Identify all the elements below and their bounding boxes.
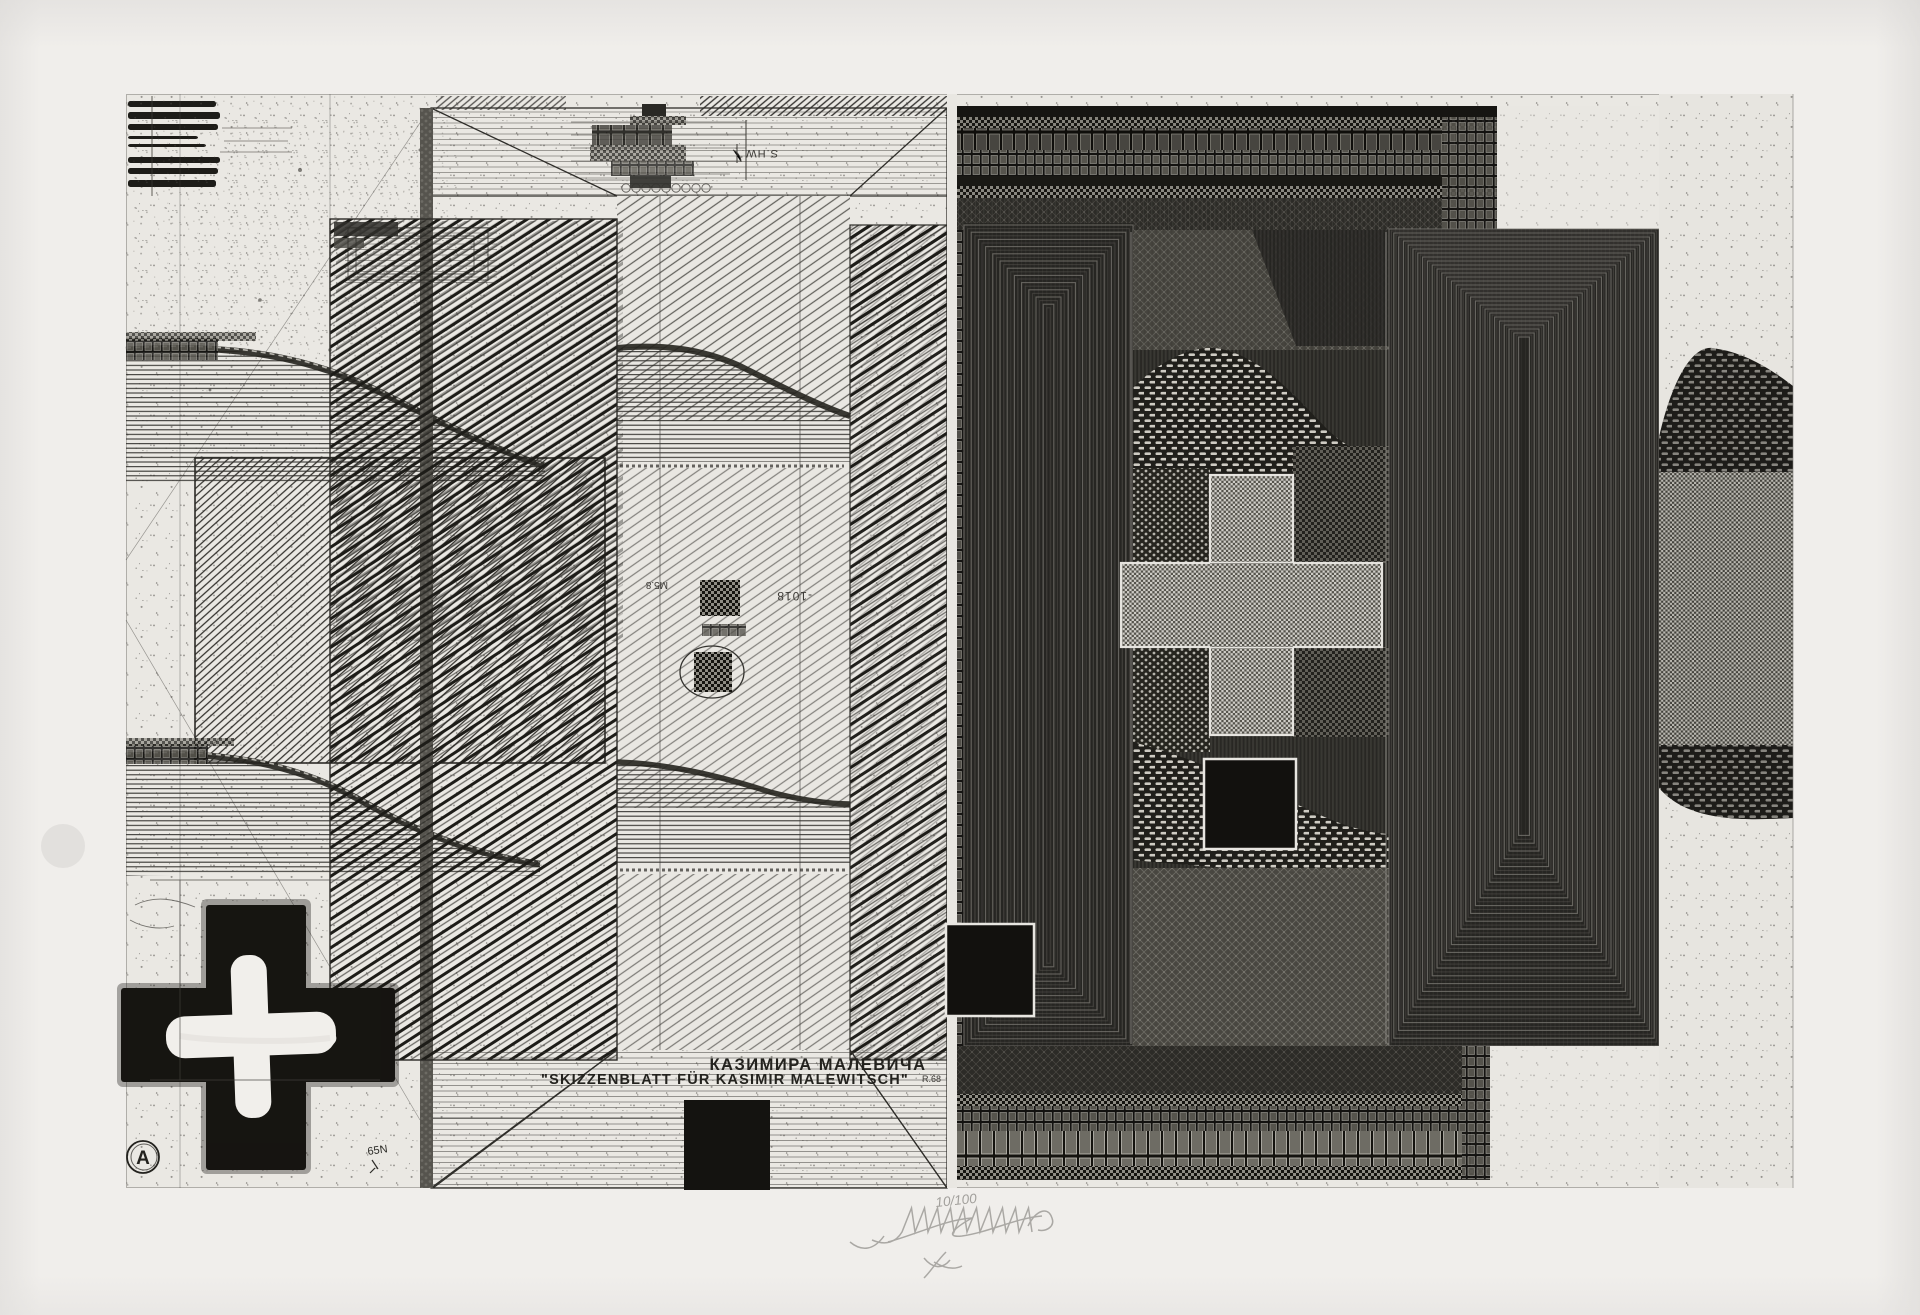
svg-text:"SKIZZENBLATT FÜR KASIMIR MALE: "SKIZZENBLATT FÜR KASIMIR MALEWITSCH" xyxy=(541,1071,909,1088)
svg-text:-1018: -1018 xyxy=(776,589,812,603)
svg-text:A: A xyxy=(136,1148,150,1169)
svg-text:M5.8: M5.8 xyxy=(645,579,668,590)
svg-text:S.HW: S.HW xyxy=(745,147,778,159)
svg-text:R.68: R.68 xyxy=(922,1074,941,1084)
